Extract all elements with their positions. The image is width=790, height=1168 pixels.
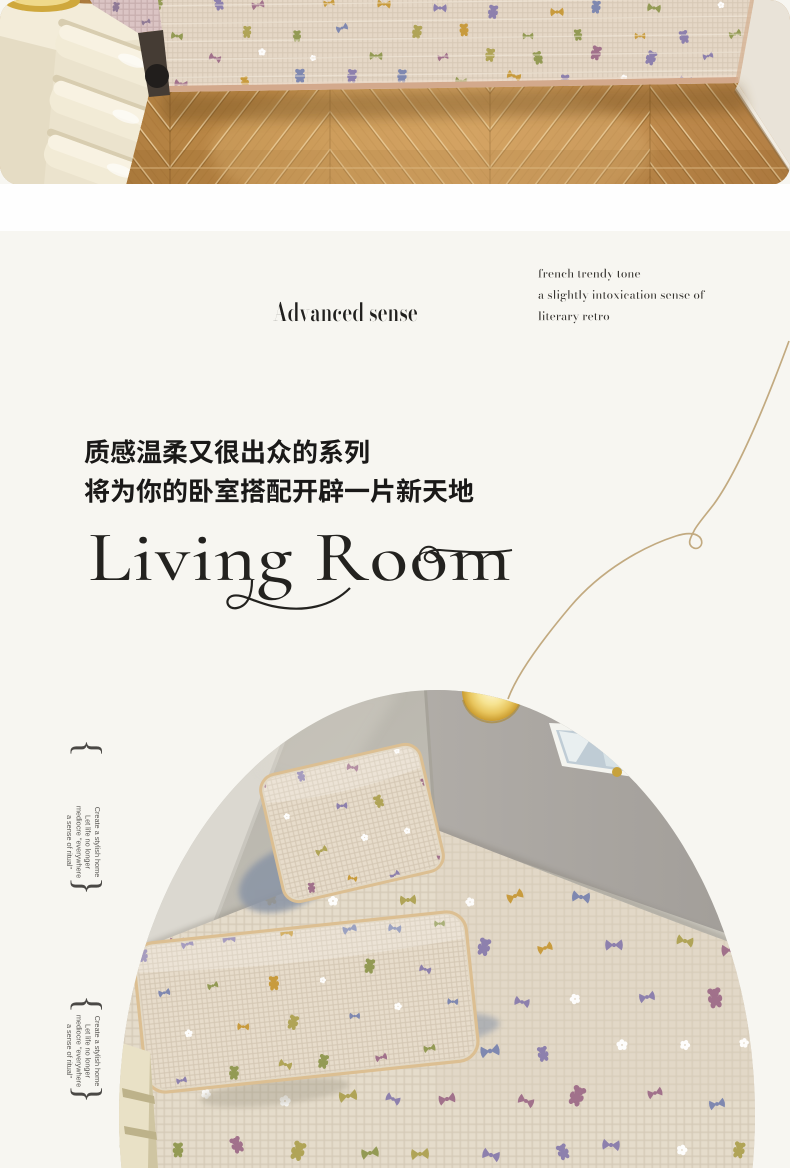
svg-text:mediocre "everywhere: mediocre "everywhere <box>74 1015 83 1087</box>
svg-text:}: } <box>66 877 108 895</box>
svg-text:{: { <box>66 739 108 757</box>
svg-text:mediocre "everywhere: mediocre "everywhere <box>74 806 83 878</box>
svg-text:Let life no longer: Let life no longer <box>84 815 93 870</box>
svg-text:Create a stylish home: Create a stylish home <box>93 1016 102 1087</box>
svg-text:Let life no longer: Let life no longer <box>84 1024 93 1079</box>
svg-text:{: { <box>66 995 108 1013</box>
svg-text:}: } <box>66 1085 108 1103</box>
svg-text:a sense of ritual": a sense of ritual" <box>65 1024 74 1079</box>
svg-text:Create a stylish home: Create a stylish home <box>93 807 102 878</box>
svg-text:a sense of ritual": a sense of ritual" <box>65 815 74 870</box>
